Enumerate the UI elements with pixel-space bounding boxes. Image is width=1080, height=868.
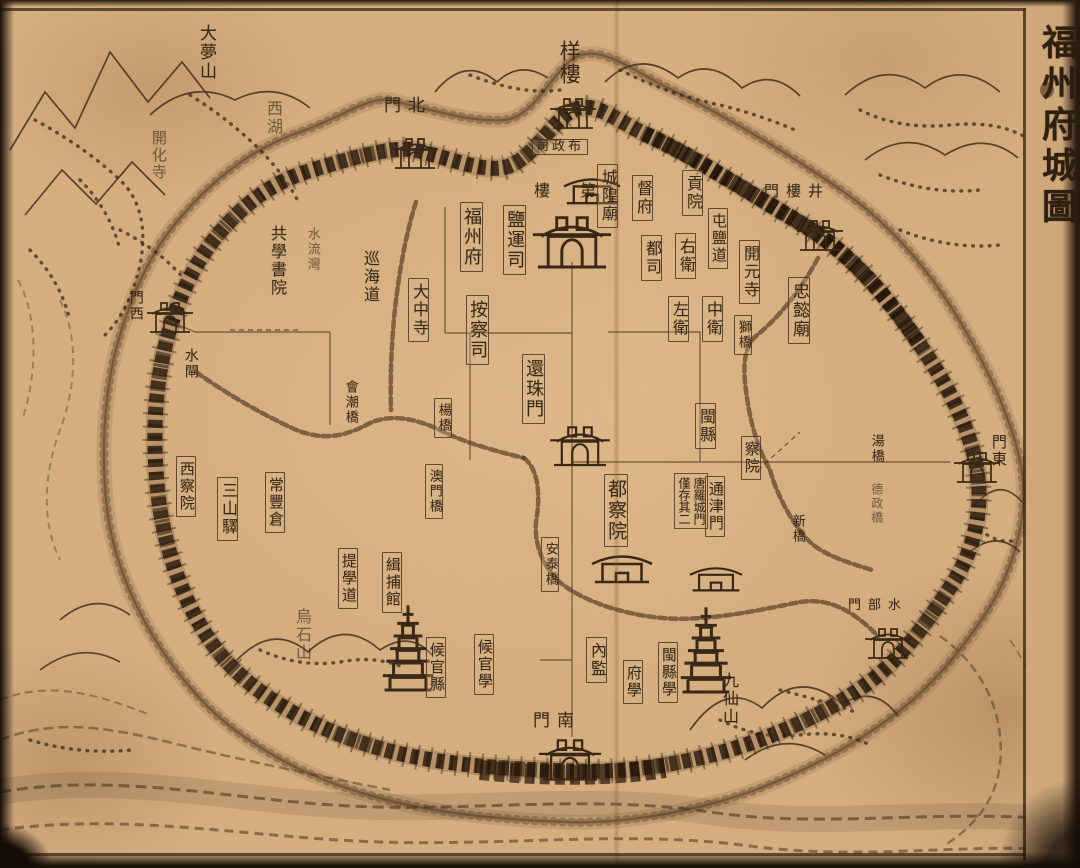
label-dufu: 督府 <box>632 175 653 221</box>
label-diyilou: 樓 第 <box>534 183 603 200</box>
label-buzhengsi: 司政布 <box>532 139 588 155</box>
fuzhou-city-map-page: 大夢山西湖開化寺烏石山九仙山門北門樓井門東門部水門南門西水閘還珠門样樓司政布城隍… <box>0 0 1080 868</box>
label-north-gate: 門北 <box>384 97 432 115</box>
label-gongyuan: 貢院 <box>682 170 703 216</box>
label-west-gate: 門西 <box>128 290 143 322</box>
label-right-guard: 右衛 <box>675 233 696 279</box>
map-frame-top <box>0 8 1026 11</box>
label-sanshan-post: 三山驛 <box>217 477 238 541</box>
label-hechao-bridge: 會潮橋 <box>343 380 357 425</box>
label-tunyan-circuit: 屯鹽道 <box>708 208 728 269</box>
label-east-gate: 門東 <box>990 434 1006 468</box>
page-fold-crease <box>613 0 620 868</box>
label-jibu-guan: 緝捕館 <box>382 552 402 613</box>
label-tixue-circuit: 提學道 <box>338 548 358 609</box>
label-west-lake: 西湖 <box>264 100 281 136</box>
label-aomen-bridge: 澳門橋 <box>425 464 443 519</box>
label-dameng-hill: 大夢山 <box>197 24 215 81</box>
label-shi-bridge: 獅橋 <box>734 315 752 355</box>
label-new-bridge: 新橋 <box>790 514 804 544</box>
label-shuibu-gate: 門部水 <box>848 599 908 613</box>
map-frame-right <box>1023 8 1026 860</box>
label-dusi: 都司 <box>641 235 662 281</box>
label-west-chayuan: 西察院 <box>176 456 196 517</box>
label-houguan-county: 候官縣 <box>426 637 446 698</box>
map-title: 福州府城圖 <box>1031 24 1080 229</box>
label-jiuxian-hill: 九仙山 <box>720 672 737 726</box>
label-fu-school: 府學 <box>623 660 643 704</box>
label-dezheng-bridge: 德政橋 <box>870 483 883 525</box>
label-min-county: 閩縣 <box>695 403 716 449</box>
label-xunhai-circuit: 巡海道 <box>361 250 378 304</box>
map-labels: 大夢山西湖開化寺烏石山九仙山門北門樓井門東門部水門南門西水閘還珠門样樓司政布城隍… <box>0 0 1080 868</box>
label-chayuan: 察院 <box>741 436 761 480</box>
label-gongxue-academy: 共學書院 <box>268 225 285 297</box>
label-houguan-school: 候官學 <box>474 634 494 695</box>
label-left-guard: 左衛 <box>668 296 689 342</box>
label-dazhong-temple: 大中寺 <box>408 278 429 342</box>
ink-stain <box>1040 82 1054 98</box>
label-yang-bridge: 楊橋 <box>434 398 452 438</box>
label-zhongyi-temple: 忠懿廟 <box>788 277 810 344</box>
label-kaiyuan-temple: 開元寺 <box>739 240 760 304</box>
label-fuzhou-fu: 福州府 <box>460 202 483 272</box>
label-wushi-hill: 烏石山 <box>293 608 310 662</box>
label-yanglou-tower: 样樓 <box>558 40 580 86</box>
label-tang-bridge: 湯橋 <box>869 434 883 464</box>
map-frame-bottom <box>0 853 1026 856</box>
label-huanzhu-gate: 還珠門 <box>522 354 545 424</box>
label-antai-bridge: 安泰橋 <box>541 537 559 592</box>
label-min-county-school: 閩縣學 <box>658 642 678 703</box>
label-jinglou-gate: 門樓井 <box>764 184 830 200</box>
label-changfeng-granary: 常豐倉 <box>265 472 285 533</box>
label-yanyunsi: 鹽運司 <box>503 205 526 275</box>
label-kaihua-temple: 開化寺 <box>150 130 166 181</box>
label-anchasi: 按察司 <box>466 295 489 365</box>
label-center-guard: 中衛 <box>702 296 723 342</box>
label-water-sluice: 水閘 <box>183 348 198 380</box>
label-south-gate: 門南 <box>533 712 581 730</box>
label-tang-luocheng-note: 唐羅城門 僅存其二 <box>674 473 708 529</box>
label-neijian: 內監 <box>586 637 607 683</box>
label-shuiliuwan: 水流灣 <box>305 227 319 272</box>
